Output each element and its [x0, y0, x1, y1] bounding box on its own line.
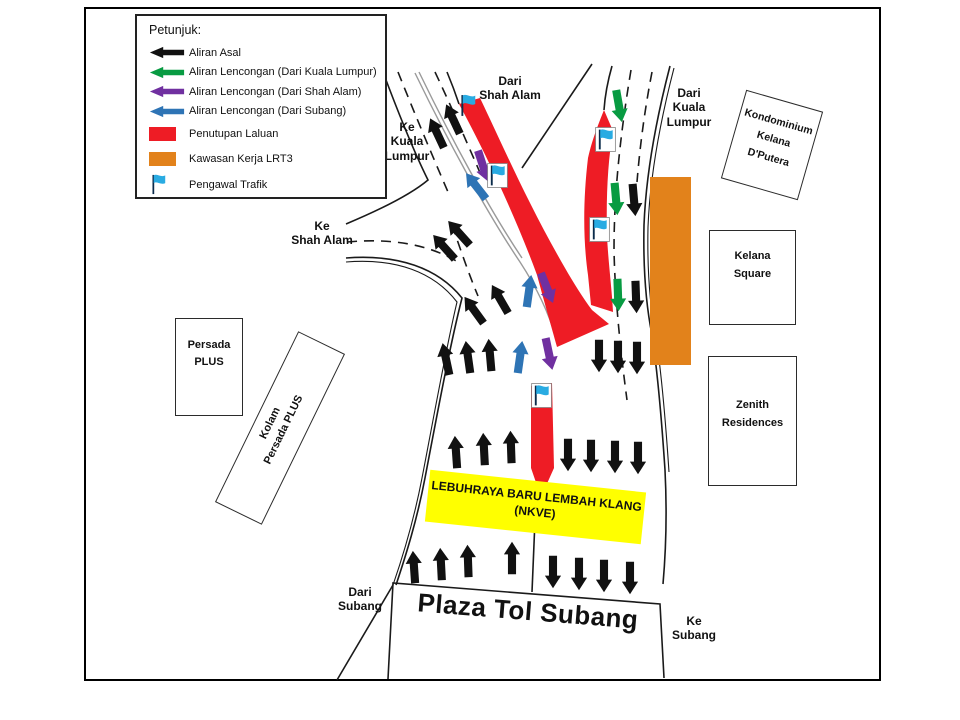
flow-arrow-asal: [459, 545, 476, 578]
legend-item-lencongan-shah-alam: Aliran Lencongan (Dari Shah Alam): [149, 82, 375, 102]
flow-arrow-asal: [607, 441, 623, 473]
flow-arrow-lencongan-subang: [510, 340, 531, 374]
flow-arrow-asal: [627, 281, 644, 314]
legend-item-kawasan-kerja: Kawasan Kerja LRT3: [149, 146, 375, 171]
label-dari-kuala-lumpur: DariKualaLumpur: [647, 86, 731, 129]
flow-arrow-asal: [625, 183, 644, 217]
traffic-marshal-flag-icon: [532, 384, 552, 408]
road-edge: [346, 261, 457, 585]
flow-arrow-asal: [571, 558, 587, 590]
traffic-marshal-flag-icon: [488, 164, 508, 188]
flow-arrow-asal: [481, 338, 500, 372]
black-arrow-icon: [149, 45, 185, 60]
flow-arrow-asal: [447, 435, 465, 468]
flow-arrow-asal: [583, 440, 599, 472]
flow-arrow-lencongan-subang: [519, 274, 540, 308]
road-edge: [604, 66, 612, 110]
legend-item-lencongan-kl: Aliran Lencongan (Dari Kuala Lumpur): [149, 63, 375, 83]
orange-swatch: [149, 152, 176, 166]
flow-arrow-asal: [622, 562, 638, 594]
building-kelana-square: Kelana Square: [709, 230, 796, 325]
legend-item-pengawal-trafik: Pengawal Trafik: [149, 171, 375, 198]
lrt3-work-area: [650, 177, 691, 365]
red-swatch: [149, 127, 176, 141]
flow-arrow-asal: [560, 439, 576, 471]
traffic-diversion-diagram: Petunjuk: Aliran Asal Aliran Lencongan (…: [0, 0, 960, 720]
flow-arrow-asal: [458, 292, 490, 328]
flag-icon: [149, 173, 169, 196]
flow-arrow-asal: [629, 342, 645, 374]
building-persada-plus: Persada PLUS: [175, 318, 243, 416]
label-dari-subang: DariSubang: [318, 585, 402, 614]
flow-arrow-asal: [435, 341, 458, 376]
flow-arrow-asal: [545, 556, 561, 588]
flow-arrow-asal: [458, 340, 479, 374]
building-zenith-residences: Zenith Residences: [708, 356, 797, 486]
label-ke-subang: KeSubang: [652, 614, 736, 643]
traffic-marshal-flag-icon: [590, 218, 610, 242]
blue-arrow-icon: [149, 104, 185, 119]
flow-arrow-asal: [610, 341, 626, 373]
flow-arrow-asal: [405, 550, 423, 583]
flow-arrow-asal: [596, 560, 612, 592]
legend-item-penutupan-laluan: Penutupan Laluan: [149, 121, 375, 146]
green-arrow-icon: [149, 65, 185, 80]
label-ke-shah-alam: KeShah Alam: [270, 219, 374, 248]
flow-arrow-asal: [475, 432, 493, 465]
flow-arrow-asal: [432, 547, 450, 580]
flow-arrow-asal: [485, 281, 515, 317]
flow-arrow-lencongan-kl: [607, 182, 626, 216]
legend-item-lencongan-subang: Aliran Lencongan (Dari Subang): [149, 102, 375, 122]
flow-arrow-asal: [504, 542, 520, 574]
road-edge: [346, 257, 462, 585]
flow-arrow-asal: [591, 340, 607, 372]
legend-title: Petunjuk:: [149, 23, 375, 37]
flow-arrow-asal: [502, 431, 519, 464]
flow-arrow-asal: [630, 442, 646, 474]
traffic-marshal-flag-icon: [596, 128, 616, 152]
purple-arrow-icon: [149, 84, 185, 99]
label-dari-shah-alam: DariShah Alam: [455, 74, 565, 103]
legend-box: Petunjuk: Aliran Asal Aliran Lencongan (…: [135, 14, 387, 199]
legend-item-aliran-asal: Aliran Asal: [149, 43, 375, 63]
